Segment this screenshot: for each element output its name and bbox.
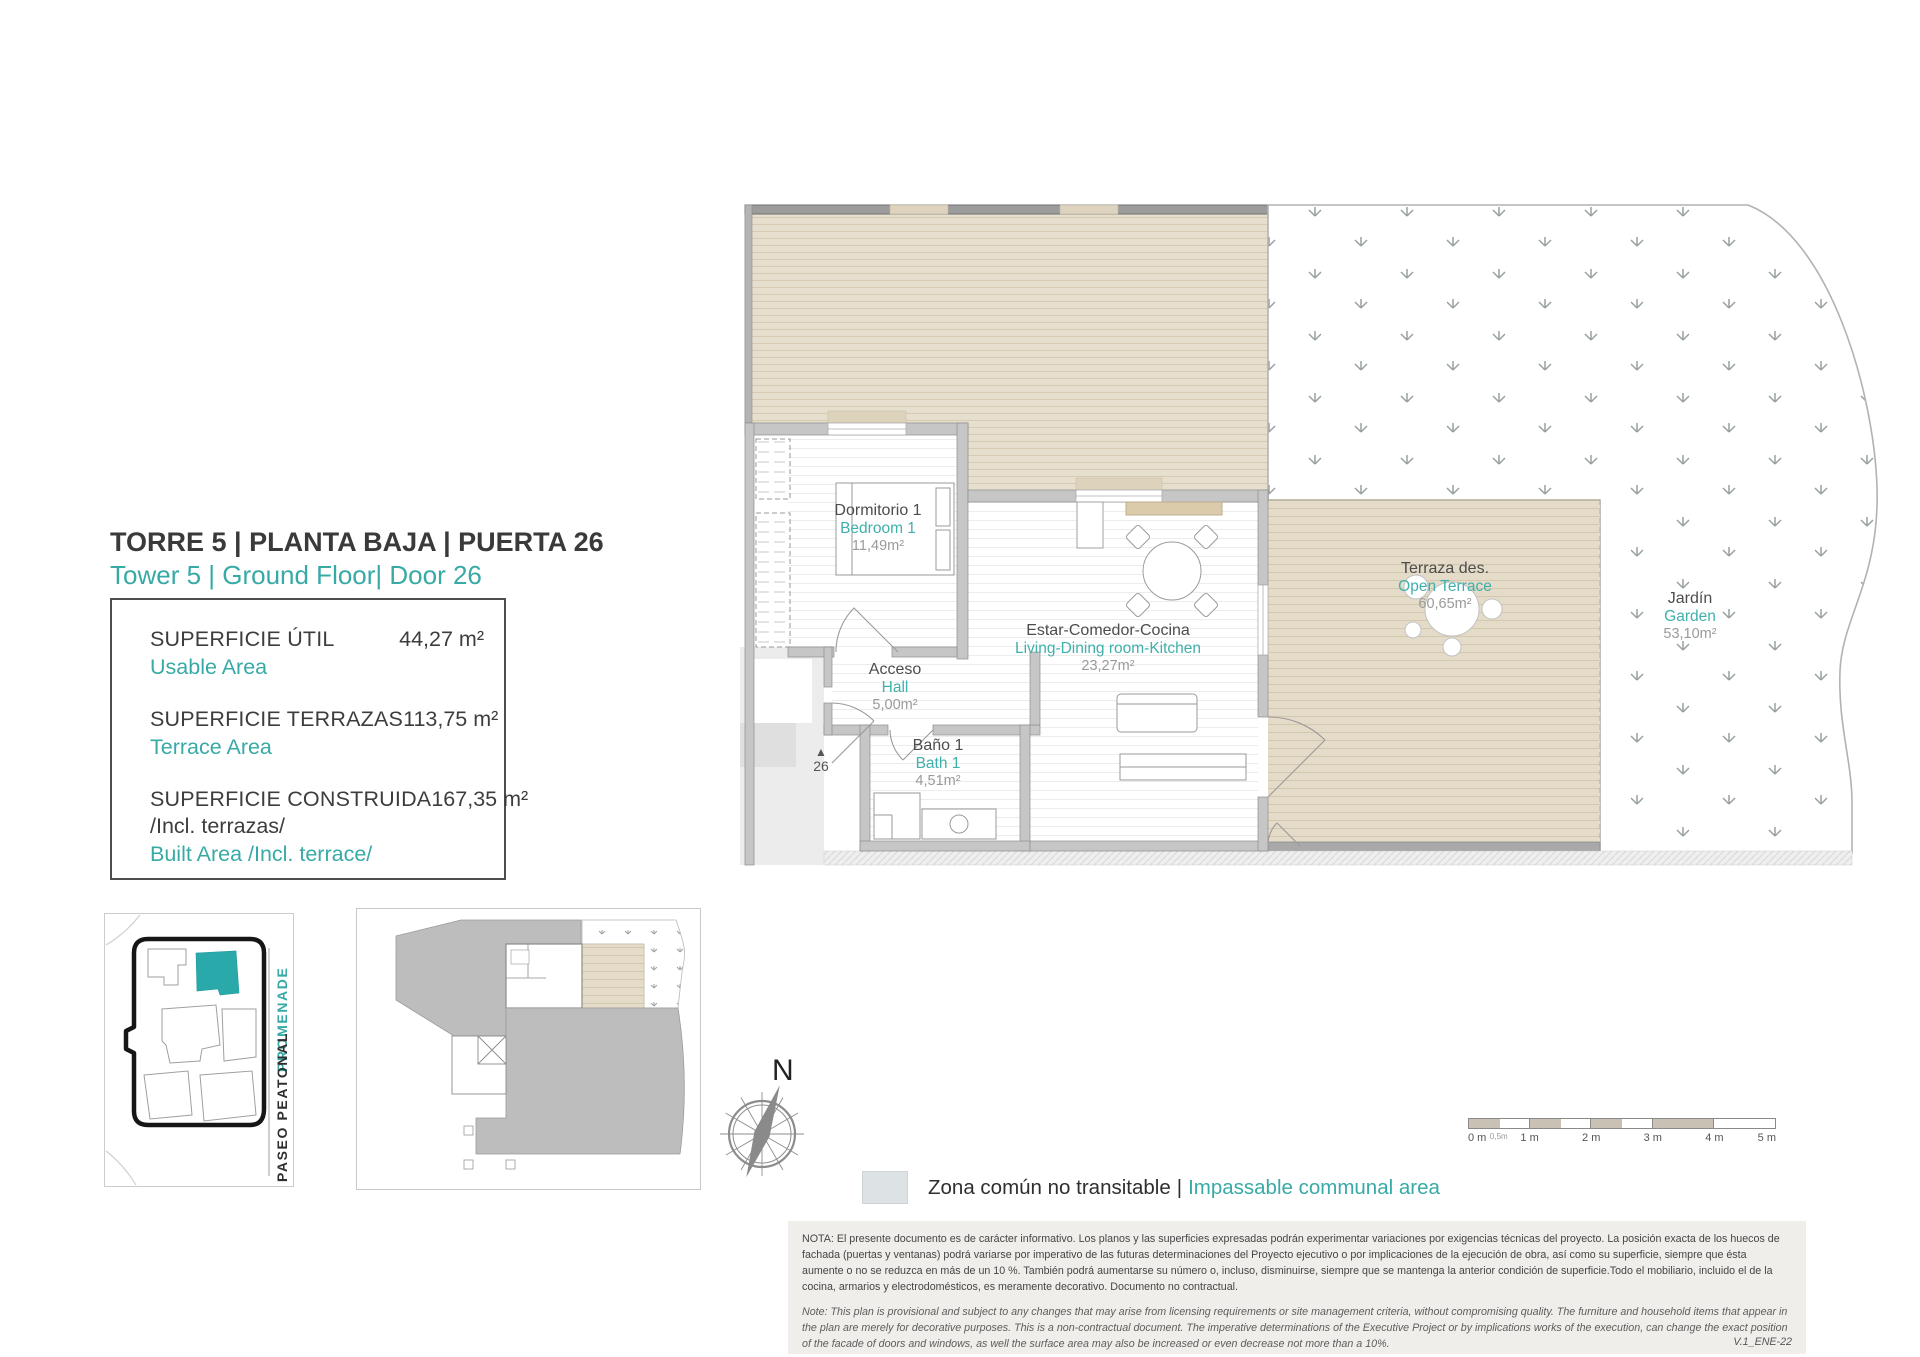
hall-area: 5,00m² [869,697,921,714]
compass-icon [714,1056,814,1206]
terrace-area-label-es: SUPERFICIE TERRAZAS [150,707,403,732]
sofa-icon [1117,694,1197,732]
room-label-terrace: Terraza des. Open Terrace 60,65m² [1398,560,1492,612]
scale-label-05m: 0,5m [1490,1132,1508,1141]
bedroom-area: 11,49m² [834,538,921,555]
garden-label-es: Jardín [1663,590,1716,608]
scale-label-2m: 2 m [1582,1132,1600,1144]
garden-area-label: 53,10m² [1663,626,1716,643]
scale-bar: 0 m 0,5m 1 m 2 m 3 m 4 m 5 m [1468,1118,1776,1148]
key-core [452,1036,506,1094]
scale-label-4m: 4 m [1705,1132,1723,1144]
site-map-divider [268,948,270,1176]
terrace-area-label-en: Terrace Area [150,735,484,760]
entrance-door-number: 26 [813,759,829,773]
terrace-area-value: 113,75 m² [403,707,498,732]
key-this-unit [506,944,582,1008]
garden-label-en: Garden [1663,608,1716,626]
built-area-value: 167,35 m² [431,787,528,812]
shower-icon [874,793,920,839]
legend-label-es: Zona común no transitable [928,1176,1171,1199]
living-area: 23,27m² [1015,658,1201,675]
terrace-area: 60,65m² [1398,596,1492,613]
terrace-label-en: Open Terrace [1398,578,1492,596]
room-label-bath: Baño 1 Bath 1 4,51m² [913,737,964,789]
disclaimer-es: NOTA: El presente documento es de caráct… [802,1231,1790,1295]
site-location-map [104,913,294,1187]
legend-label-en: Impassable communal area [1188,1176,1440,1199]
floor-plan-page: TORRE 5 | PLANTA BAJA | PUERTA 26 Tower … [0,0,1920,1357]
key-other-units-bottom [476,1008,684,1154]
disclaimer-box: NOTA: El presente documento es de caráct… [788,1221,1806,1354]
bath-label-es: Baño 1 [913,737,964,755]
entrance-marker: ▲ 26 [813,746,829,773]
room-label-bedroom: Dormitorio 1 Bedroom 1 11,49m² [834,502,921,554]
scale-label-3m: 3 m [1644,1132,1662,1144]
terrace-label-es: Terraza des. [1398,560,1492,578]
plan-version: V.1_ENE-22 [1733,1336,1792,1348]
tv-bench-icon [1120,754,1246,780]
usable-area-label-en: Usable Area [150,655,484,680]
scale-label-1m: 1 m [1520,1132,1538,1144]
area-summary-box: SUPERFICIE ÚTIL 44,27 m² Usable Area SUP… [110,598,506,880]
bedroom-label-en: Bedroom 1 [834,520,921,538]
scale-bar-labels: 0 m 0,5m 1 m 2 m 3 m 4 m 5 m [1468,1132,1776,1148]
usable-area-value: 44,27 m² [399,627,484,652]
room-label-living: Estar-Comedor-Cocina Living-Dining room-… [1015,622,1201,674]
room-label-hall: Acceso Hall 5,00m² [869,661,921,713]
scale-label-5m: 5 m [1758,1132,1776,1144]
entrance-arrow-icon: ▲ [813,746,829,758]
compass-north-label: N [772,1054,794,1088]
usable-area-row: SUPERFICIE ÚTIL 44,27 m² Usable Area [150,627,484,680]
built-area-row: SUPERFICIE CONSTRUIDA 167,35 m² /Incl. t… [150,787,484,867]
living-label-es: Estar-Comedor-Cocina [1015,622,1201,640]
highlighted-building [196,951,239,995]
floor-key-plan [356,908,701,1190]
page-subtitle: Tower 5 | Ground Floor| Door 26 [110,560,482,591]
bedroom-label-es: Dormitorio 1 [834,502,921,520]
built-area-label-es-sub: /Incl. terrazas/ [150,814,484,839]
legend-label: Zona común no transitable|Impassable com… [928,1176,1440,1200]
paseo-peatonal-label: PASEO PEATONAL [274,1052,290,1182]
bath-label-en: Bath 1 [913,755,964,773]
open-terrace-area [1268,500,1600,851]
room-label-garden: Jardín Garden 53,10m² [1663,590,1716,642]
living-label-en: Living-Dining room-Kitchen [1015,640,1201,658]
key-terrace [582,944,644,1008]
bath-sink-icon [922,809,996,839]
scale-bar-graphic [1468,1118,1776,1129]
scale-label-0m: 0 m [1468,1132,1486,1144]
disclaimer-en: Note: This plan is provisional and subje… [802,1304,1790,1352]
legend-separator: | [1177,1176,1182,1199]
hall-label-en: Hall [869,679,921,697]
page-title: TORRE 5 | PLANTA BAJA | PUERTA 26 [110,527,604,558]
built-area-label-es: SUPERFICIE CONSTRUIDA [150,787,431,812]
usable-area-label-es: SUPERFICIE ÚTIL [150,627,335,652]
hall-label-es: Acceso [869,661,921,679]
legend-swatch [862,1171,908,1204]
built-area-label-en: Built Area /Incl. terrace/ [150,842,484,867]
terrace-area-row: SUPERFICIE TERRAZAS 113,75 m² Terrace Ar… [150,707,484,760]
bath-area: 4,51m² [913,773,964,790]
wardrobe-shafts [756,439,790,647]
